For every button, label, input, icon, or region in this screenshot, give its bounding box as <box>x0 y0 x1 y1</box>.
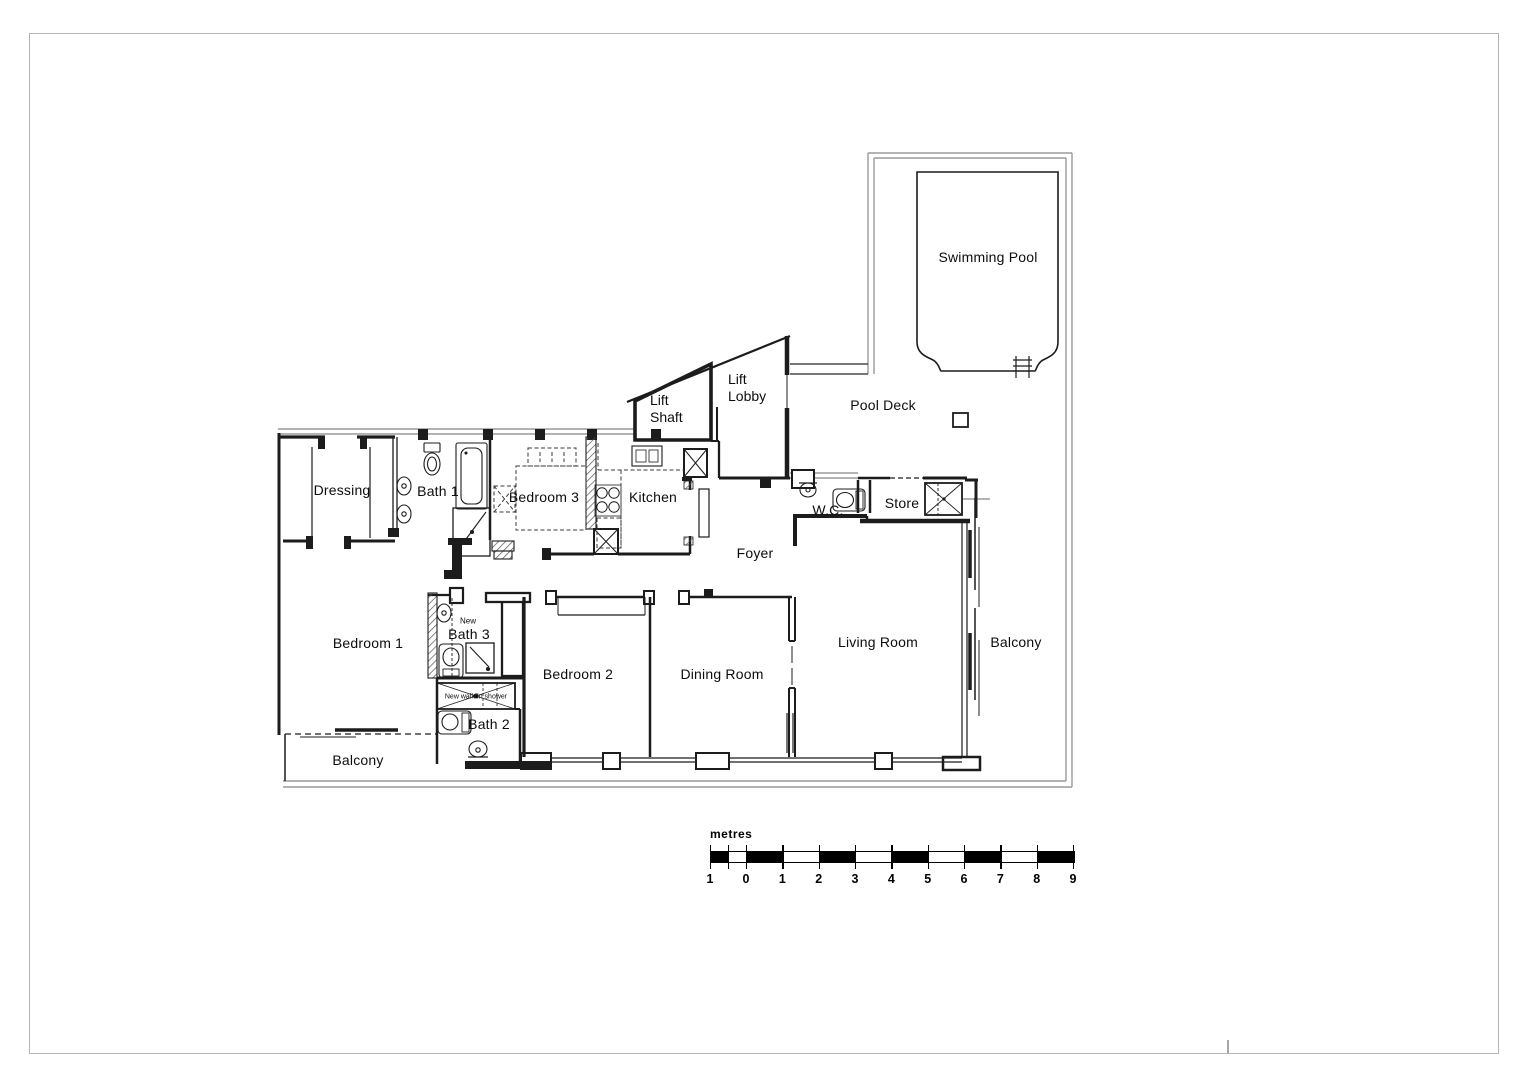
scalebar-number: 5 <box>924 872 931 886</box>
bath3-shower-icon <box>466 643 494 673</box>
scalebar-segment <box>929 852 965 862</box>
bathtub-icon <box>456 443 487 509</box>
label-kitchen: Kitchen <box>629 489 677 505</box>
stove-icon <box>595 485 621 516</box>
scalebar-number: 0 <box>743 872 750 886</box>
swimming-pool-outline <box>917 172 1058 427</box>
label-bath-3: Bath 3 <box>448 626 490 642</box>
scalebar-tick <box>1000 845 1001 869</box>
scalebar-tick <box>746 845 747 869</box>
scalebar-tick <box>855 845 856 869</box>
scalebar-tick <box>819 845 820 869</box>
label-lift-lobby-line2: Lobby <box>728 388 766 405</box>
bath3-toilet-icon <box>439 644 463 678</box>
kitchen-sink-icon <box>632 446 662 466</box>
scalebar-segment <box>729 852 747 862</box>
label-pool-deck: Pool Deck <box>850 397 916 413</box>
scalebar-number: 2 <box>815 872 822 886</box>
sink-icon <box>397 477 411 523</box>
deck-planter <box>953 413 968 427</box>
scalebar-unit-label: metres <box>710 827 752 841</box>
label-dressing: Dressing <box>314 482 371 498</box>
shaft-kitchen-left <box>594 529 618 554</box>
label-balcony-right: Balcony <box>990 634 1041 650</box>
scalebar-tick <box>1037 845 1038 869</box>
scalebar-segment <box>1038 852 1074 862</box>
label-lift-shaft: Lift Shaft <box>650 392 683 426</box>
scalebar-number: 1 <box>707 872 714 886</box>
scalebar-tick <box>710 845 711 869</box>
label-wc: W.C. <box>812 502 843 518</box>
label-store: Store <box>885 495 919 511</box>
scalebar-number: 9 <box>1070 872 1077 886</box>
label-dining-room: Dining Room <box>680 666 763 682</box>
scalebar-segment <box>1001 852 1037 862</box>
label-lift-shaft-line2: Shaft <box>650 409 683 426</box>
shower-icon <box>453 508 490 556</box>
scalebar-segment <box>711 852 729 862</box>
label-new-marker: New <box>460 617 476 626</box>
label-lift-lobby: Lift Lobby <box>728 371 766 405</box>
scalebar-tick <box>891 845 892 869</box>
scalebar-number: 4 <box>888 872 895 886</box>
scalebar-number: 6 <box>961 872 968 886</box>
walls <box>279 429 980 781</box>
deck-boundary <box>790 364 868 374</box>
existing-walls <box>278 153 1228 1053</box>
scalebar-segment <box>783 852 819 862</box>
bath2-sink-icon <box>468 741 488 757</box>
label-bath-2: Bath 2 <box>468 716 510 732</box>
label-bedroom-1: Bedroom 1 <box>333 635 403 651</box>
label-lift-shaft-line1: Lift <box>650 392 683 409</box>
scalebar-number: 7 <box>997 872 1004 886</box>
scalebar-segment <box>965 852 1001 862</box>
scalebar-tick <box>728 845 729 869</box>
shaft-kitchen-right <box>682 449 707 481</box>
scalebar-segment <box>820 852 856 862</box>
pool-ladder-icon <box>1013 356 1032 378</box>
scalebar-number: 3 <box>852 872 859 886</box>
label-swimming-pool: Swimming Pool <box>938 249 1037 265</box>
label-lift-lobby-line1: Lift <box>728 371 766 388</box>
scalebar-tick <box>782 845 783 869</box>
scalebar-number: 8 <box>1033 872 1040 886</box>
scalebar-segment <box>892 852 928 862</box>
label-walk-in-shower: New walk-in shower <box>445 694 507 701</box>
scalebar-segment <box>856 852 892 862</box>
label-bath-1: Bath 1 <box>417 483 459 499</box>
label-foyer: Foyer <box>737 545 774 561</box>
label-living-room: Living Room <box>838 634 918 650</box>
floor-plan-page: Swimming Pool Pool Deck Lift Shaft Lift … <box>0 0 1527 1080</box>
label-balcony-left: Balcony <box>332 752 383 768</box>
scalebar-tick <box>1073 845 1074 869</box>
scalebar-segment <box>747 852 783 862</box>
scalebar-tick <box>928 845 929 869</box>
scalebar-tick <box>964 845 965 869</box>
floor-plan-drawing <box>0 0 1527 1080</box>
toilet-icon <box>424 443 440 475</box>
label-bedroom-2: Bedroom 2 <box>543 666 613 682</box>
scalebar-number: 1 <box>779 872 786 886</box>
bath2-toilet-icon <box>438 711 471 734</box>
shaft-store <box>925 483 962 515</box>
label-bedroom-3: Bedroom 3 <box>509 489 579 505</box>
